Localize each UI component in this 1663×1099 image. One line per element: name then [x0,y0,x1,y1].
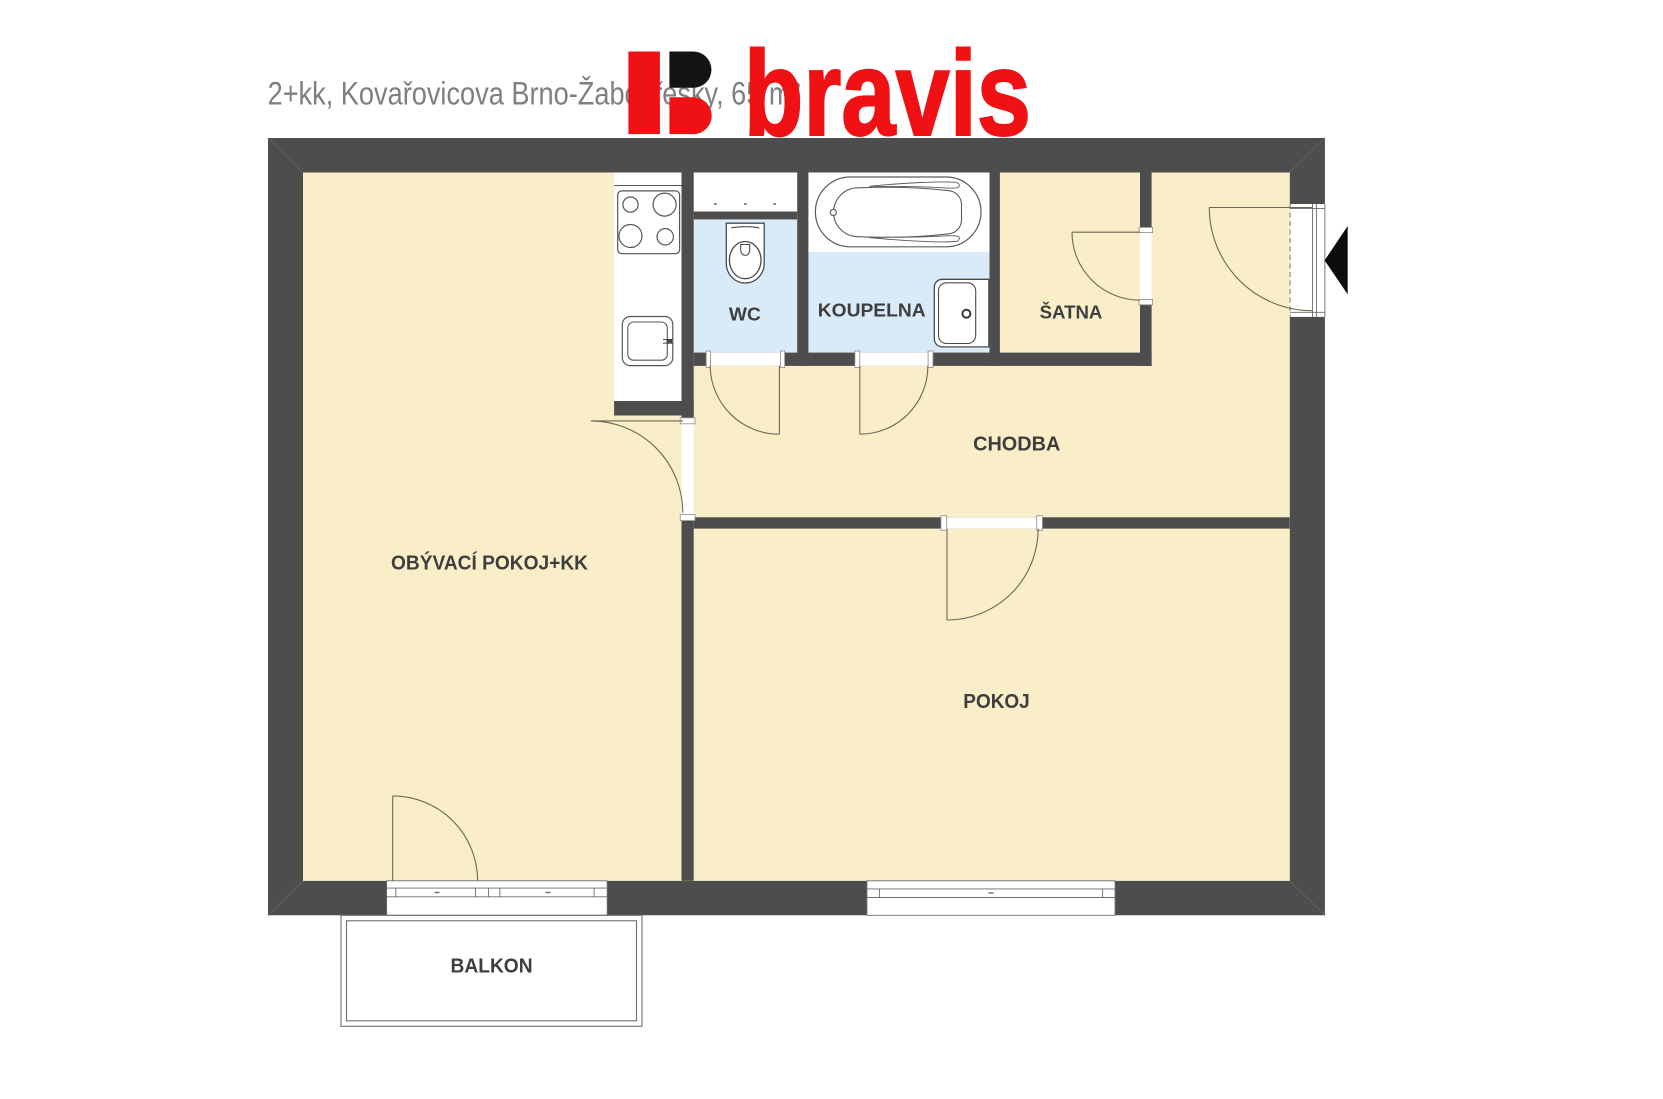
svg-text:ŠATNA: ŠATNA [1040,301,1103,322]
svg-text:2+kk, Kovařovicova Brno-Žabovř: 2+kk, Kovařovicova Brno-Žabovřesky, 65 m… [268,75,801,112]
svg-text:WC: WC [729,305,761,325]
svg-text:BALKON: BALKON [451,956,533,978]
svg-text:CHODBA: CHODBA [973,434,1060,456]
svg-text:KOUPELNA: KOUPELNA [818,301,926,321]
svg-text:OBÝVACÍ POKOJ+KK: OBÝVACÍ POKOJ+KK [391,550,589,574]
svg-text:POKOJ: POKOJ [963,691,1029,713]
